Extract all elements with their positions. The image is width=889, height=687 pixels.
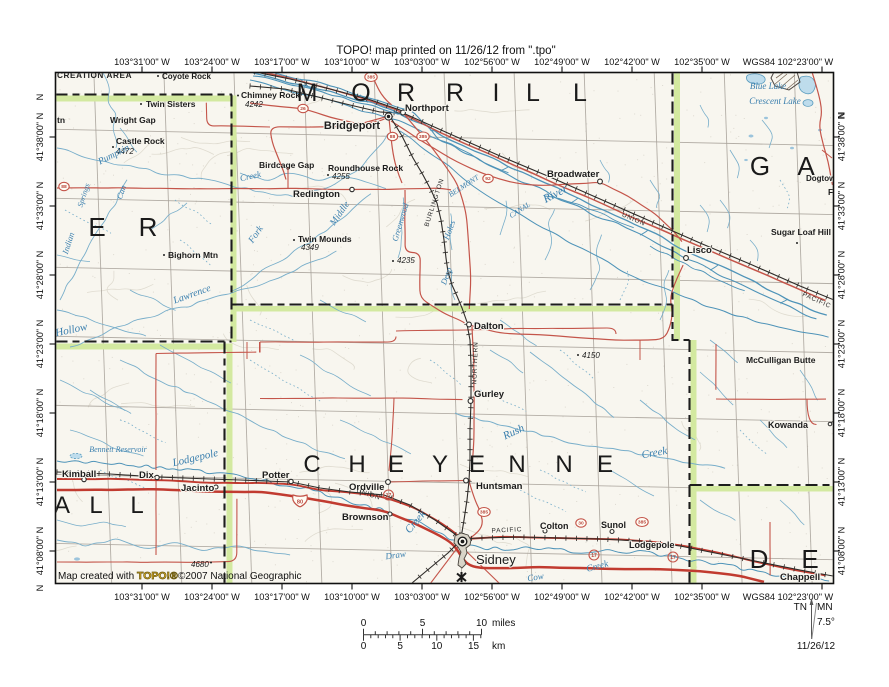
svg-text:H: H bbox=[348, 451, 365, 478]
svg-text:Dix: Dix bbox=[139, 470, 155, 481]
svg-text:Broadwater: Broadwater bbox=[547, 169, 600, 180]
svg-text:Sidney: Sidney bbox=[476, 552, 516, 567]
svg-text:Huntsman: Huntsman bbox=[476, 481, 523, 492]
svg-text:41°08'00" N: 41°08'00" N bbox=[35, 527, 45, 576]
svg-text:Kowanda: Kowanda bbox=[768, 420, 809, 430]
svg-text:L: L bbox=[130, 492, 143, 519]
svg-text:Bennett Reservoir: Bennett Reservoir bbox=[89, 445, 147, 454]
svg-text:41°28'00" N: 41°28'00" N bbox=[35, 251, 45, 300]
svg-text:0: 0 bbox=[361, 641, 367, 652]
svg-text:102°42'00" W: 102°42'00" W bbox=[604, 57, 660, 67]
svg-text:41°18'00" N: 41°18'00" N bbox=[35, 389, 45, 438]
svg-text:Colton: Colton bbox=[540, 521, 569, 531]
svg-text:103°10'00" W: 103°10'00" W bbox=[324, 57, 380, 67]
svg-text:N: N bbox=[837, 112, 847, 119]
svg-text:Y: Y bbox=[432, 451, 448, 478]
svg-text:N: N bbox=[555, 451, 572, 478]
svg-text:4680: 4680 bbox=[191, 560, 209, 569]
svg-text:C: C bbox=[303, 451, 320, 478]
svg-text:E: E bbox=[388, 451, 404, 478]
svg-text:TOPO!®: TOPO!® bbox=[137, 570, 178, 582]
svg-text:88: 88 bbox=[61, 184, 67, 190]
svg-text:30: 30 bbox=[578, 521, 584, 527]
svg-text:O: O bbox=[351, 79, 370, 107]
svg-text:N: N bbox=[35, 94, 45, 101]
svg-text:N: N bbox=[508, 451, 525, 478]
svg-text:26: 26 bbox=[300, 106, 306, 112]
svg-text:E: E bbox=[88, 212, 105, 242]
svg-text:Lodgepole: Lodgepole bbox=[629, 540, 675, 550]
svg-text:5: 5 bbox=[420, 618, 426, 629]
svg-text:Brownson: Brownson bbox=[342, 512, 389, 523]
svg-text:Dalton: Dalton bbox=[474, 321, 504, 332]
svg-text:L: L bbox=[89, 492, 102, 519]
svg-text:41°18'00" N: 41°18'00" N bbox=[837, 389, 847, 438]
svg-text:10: 10 bbox=[476, 618, 488, 629]
svg-text:41°23'00" N: 41°23'00" N bbox=[35, 320, 45, 369]
svg-text:41°13'00" N: 41°13'00" N bbox=[35, 458, 45, 507]
svg-text:Potter: Potter bbox=[262, 470, 290, 481]
svg-text:km: km bbox=[492, 641, 505, 652]
svg-text:103°24'00" W: 103°24'00" W bbox=[184, 57, 240, 67]
svg-text:Birdcage Gap: Birdcage Gap bbox=[259, 160, 314, 170]
svg-text:©2007 National Geographic: ©2007 National Geographic bbox=[178, 571, 302, 582]
svg-text:Twin Sisters: Twin Sisters bbox=[146, 99, 196, 109]
svg-text:E: E bbox=[469, 451, 485, 478]
svg-text:17: 17 bbox=[386, 493, 392, 499]
svg-text:Bighorn Mtn: Bighorn Mtn bbox=[168, 250, 218, 260]
svg-text:Northport: Northport bbox=[405, 103, 450, 114]
svg-text:4235: 4235 bbox=[397, 256, 415, 265]
svg-text:102°49'00" W: 102°49'00" W bbox=[534, 57, 590, 67]
svg-text:Coyote Rock: Coyote Rock bbox=[162, 72, 211, 81]
svg-text:Chappell: Chappell bbox=[780, 572, 820, 583]
svg-text:WGS84 102°23'00" W: WGS84 102°23'00" W bbox=[743, 57, 834, 67]
svg-text:4349: 4349 bbox=[301, 243, 319, 252]
svg-text:92: 92 bbox=[485, 176, 491, 182]
svg-text:103°17'00" W: 103°17'00" W bbox=[254, 592, 310, 602]
svg-text:Sunol: Sunol bbox=[601, 520, 626, 530]
svg-text:102°56'00" W: 102°56'00" W bbox=[464, 57, 520, 67]
svg-text:Blue Lake: Blue Lake bbox=[750, 81, 786, 91]
svg-text:17: 17 bbox=[670, 555, 676, 561]
svg-text:L: L bbox=[526, 79, 540, 107]
svg-text:E: E bbox=[801, 544, 818, 574]
svg-text:Crescent Lake: Crescent Lake bbox=[749, 96, 800, 106]
svg-text:Sugar Loaf Hill: Sugar Loaf Hill bbox=[771, 227, 831, 237]
svg-text:Jacinto: Jacinto bbox=[181, 483, 214, 494]
svg-text:McCulligan Butte: McCulligan Butte bbox=[746, 355, 816, 365]
svg-text:103°17'00" W: 103°17'00" W bbox=[254, 57, 310, 67]
svg-text:E: E bbox=[597, 451, 613, 478]
svg-text:80: 80 bbox=[297, 500, 303, 506]
svg-text:7.5°: 7.5° bbox=[817, 617, 835, 628]
svg-text:R: R bbox=[139, 212, 158, 242]
svg-text:385: 385 bbox=[638, 520, 646, 526]
svg-text:G: G bbox=[750, 151, 770, 181]
svg-text:41°13'00" N: 41°13'00" N bbox=[837, 458, 847, 507]
svg-text:102°42'00" W: 102°42'00" W bbox=[604, 592, 660, 602]
svg-text:N: N bbox=[35, 585, 45, 592]
svg-text:Map created with: Map created with bbox=[58, 571, 134, 582]
svg-text:102°49'00" W: 102°49'00" W bbox=[534, 592, 590, 602]
svg-text:Bridgeport: Bridgeport bbox=[324, 120, 381, 132]
svg-text:41°38'00" N: 41°38'00" N bbox=[837, 113, 847, 162]
svg-text:103°31'00" W: 103°31'00" W bbox=[114, 57, 170, 67]
svg-text:41°33'00" N: 41°33'00" N bbox=[837, 182, 847, 231]
svg-text:10: 10 bbox=[431, 641, 443, 652]
svg-text:41°38'00" N: 41°38'00" N bbox=[35, 113, 45, 162]
svg-text:102°56'00" W: 102°56'00" W bbox=[464, 592, 520, 602]
svg-text:5: 5 bbox=[397, 641, 403, 652]
svg-text:A: A bbox=[54, 492, 70, 519]
svg-text:F: F bbox=[828, 187, 833, 197]
svg-text:103°24'00" W: 103°24'00" W bbox=[184, 592, 240, 602]
svg-text:0: 0 bbox=[361, 618, 367, 629]
svg-text:41°23'00" N: 41°23'00" N bbox=[837, 320, 847, 369]
svg-text:385: 385 bbox=[419, 134, 427, 140]
svg-text:103°31'00" W: 103°31'00" W bbox=[114, 592, 170, 602]
svg-text:WGS84 102°23'00" W: WGS84 102°23'00" W bbox=[743, 592, 834, 602]
svg-text:Lisco: Lisco bbox=[687, 245, 712, 256]
svg-text:102°35'00" W: 102°35'00" W bbox=[674, 57, 730, 67]
svg-text:103°03'00" W: 103°03'00" W bbox=[394, 592, 450, 602]
svg-text:4255: 4255 bbox=[332, 172, 350, 181]
svg-text:I: I bbox=[493, 79, 500, 107]
svg-text:103°10'00" W: 103°10'00" W bbox=[324, 592, 380, 602]
svg-text:TN: TN bbox=[794, 602, 807, 613]
svg-text:MN: MN bbox=[817, 602, 833, 613]
svg-text:17: 17 bbox=[591, 553, 597, 559]
svg-text:41°28'00" N: 41°28'00" N bbox=[837, 251, 847, 300]
svg-text:L: L bbox=[573, 79, 587, 107]
svg-text:TOPO! map printed on 11/26/12: TOPO! map printed on 11/26/12 from ".tpo… bbox=[336, 45, 555, 57]
svg-text:4242: 4242 bbox=[245, 100, 263, 109]
svg-text:Redington: Redington bbox=[293, 189, 340, 200]
svg-text:Kimball: Kimball bbox=[62, 469, 96, 480]
svg-text:11/26/12: 11/26/12 bbox=[797, 641, 836, 652]
svg-text:41°08'00" N: 41°08'00" N bbox=[837, 527, 847, 576]
svg-text:Gurley: Gurley bbox=[474, 389, 505, 400]
svg-text:102°35'00" W: 102°35'00" W bbox=[674, 592, 730, 602]
svg-text:Wright Gap: Wright Gap bbox=[110, 115, 156, 125]
svg-text:Chimney Rock: Chimney Rock bbox=[241, 90, 300, 100]
svg-text:103°03'00" W: 103°03'00" W bbox=[394, 57, 450, 67]
svg-text:tn: tn bbox=[57, 115, 65, 125]
svg-text:41°33'00" N: 41°33'00" N bbox=[35, 182, 45, 231]
svg-text:88: 88 bbox=[390, 134, 396, 140]
svg-text:D: D bbox=[750, 544, 769, 574]
svg-text:miles: miles bbox=[492, 618, 515, 629]
svg-text:385: 385 bbox=[480, 510, 488, 516]
svg-text:4150: 4150 bbox=[582, 351, 600, 360]
svg-text:15: 15 bbox=[468, 641, 480, 652]
